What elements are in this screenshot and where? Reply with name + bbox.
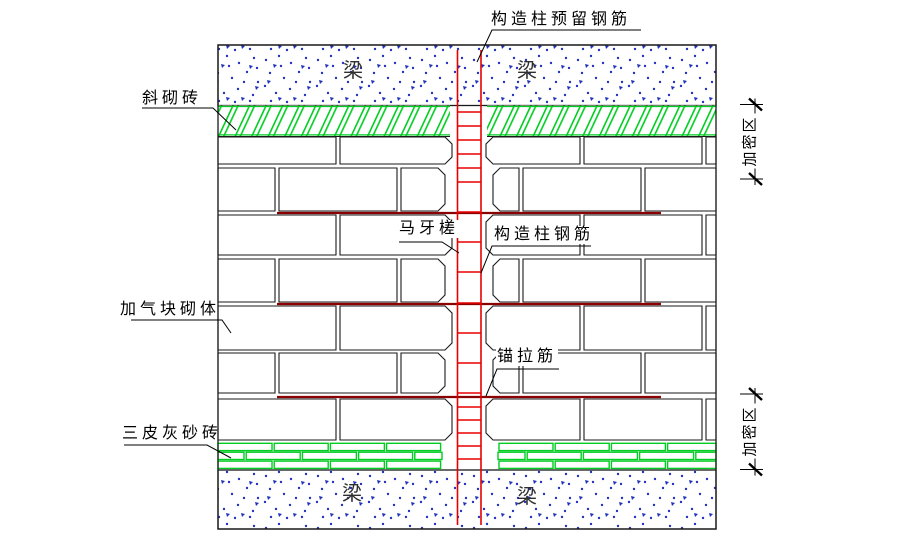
lime-sand-brick [668, 443, 716, 450]
aerated-block-brick [218, 137, 336, 164]
aerated-block-brick [279, 259, 397, 302]
aerated-block-brick [645, 353, 716, 393]
top-beam [218, 45, 716, 106]
label-beam-bottom-right: 梁 [517, 486, 537, 508]
aerated-block-brick [218, 353, 275, 393]
aerated-block-brick [218, 215, 336, 255]
aerated-block-brick [706, 215, 716, 255]
aerated-block-brick [486, 306, 580, 350]
aerated-block-brick [706, 137, 716, 164]
aerated-block-brick [493, 168, 519, 211]
aerated-block-brick [401, 353, 445, 393]
lime-sand-brick [696, 452, 716, 459]
lime-sand-brick [302, 452, 356, 459]
aerated-block-brick [493, 259, 519, 302]
aerated-block-brick [645, 168, 716, 211]
aerated-block-brick [645, 259, 716, 302]
label-beam-top-left: 梁 [343, 60, 363, 82]
lime-sand-brick [387, 461, 441, 468]
aerated-block-brick [218, 168, 275, 211]
aerated-block-brick [401, 259, 445, 302]
lime-sand-brick [640, 452, 694, 459]
construction-detail-drawing: 构造柱预留钢筋 斜砌砖 加气块砌体 三皮灰砂砖 马牙槎 构造柱钢筋 锚拉筋 加密… [0, 0, 914, 550]
masonry-column-diagram [0, 0, 914, 550]
aerated-block-brick [218, 306, 336, 350]
lime-sand-brick [555, 461, 609, 468]
diagonal-brick-band [218, 106, 716, 137]
aerated-block-brick [279, 353, 397, 393]
lime-sand-brick [218, 443, 272, 450]
label-densified-zone-top: 加密区 [742, 113, 759, 168]
leader-line [124, 445, 231, 458]
leader-line [131, 320, 231, 333]
lime-sand-brick [611, 461, 665, 468]
lime-sand-brick [583, 452, 637, 459]
aerated-block-brick [340, 306, 452, 350]
lime-sand-brick [611, 443, 665, 450]
label-anchor-tie: 锚拉筋 [496, 348, 558, 366]
label-aerated-block: 加气块砌体 [120, 301, 220, 319]
aerated-block-brick [523, 259, 641, 302]
lime-sand-brick [668, 461, 716, 468]
aerated-block-brick [218, 259, 275, 302]
diagonal-brick-segment [487, 106, 716, 137]
lime-sand-brick [387, 443, 441, 450]
lime-sand-brick [415, 452, 442, 459]
aerated-block-brick [584, 137, 702, 164]
aerated-block-brick [486, 399, 580, 440]
aerated-block-brick [584, 306, 702, 350]
lime-sand-brick [498, 452, 525, 459]
aerated-block-brick [401, 168, 445, 211]
aerated-block-brick [340, 399, 452, 440]
lime-sand-brick [330, 461, 384, 468]
aerated-block-brick [706, 399, 716, 440]
lime-sand-brick [359, 452, 413, 459]
lime-sand-brick [274, 443, 328, 450]
lime-sand-brick [499, 443, 553, 450]
label-densified-zone-bottom: 加密区 [742, 403, 759, 458]
label-column-rebar: 构造柱钢筋 [493, 226, 595, 244]
aerated-block-brick [486, 137, 580, 164]
label-beam-bottom-left: 梁 [342, 483, 362, 505]
label-lime-sand-brick: 三皮灰砂砖 [122, 425, 222, 443]
bottom-beam [218, 470, 716, 529]
aerated-block-brick [218, 399, 336, 440]
aerated-block-brick [340, 137, 452, 164]
aerated-block-brick [584, 215, 702, 255]
lime-sand-brick [274, 461, 328, 468]
lime-sand-brick-band [218, 443, 716, 468]
diagonal-brick-segment [218, 106, 450, 137]
label-diagonal-brick: 斜砌砖 [142, 90, 202, 108]
lime-sand-brick [527, 452, 581, 459]
aerated-block-brick [584, 399, 702, 440]
aerated-block-brick [523, 168, 641, 211]
lime-sand-brick [499, 461, 553, 468]
aerated-block-brick [279, 168, 397, 211]
lime-sand-brick [218, 461, 272, 468]
label-toothed-joint: 马牙槎 [398, 220, 460, 238]
aerated-block-brick [706, 306, 716, 350]
lime-sand-brick [330, 443, 384, 450]
lime-sand-brick [555, 443, 609, 450]
label-top-reserved-rebar: 构造柱预留钢筋 [491, 11, 631, 29]
lime-sand-brick [246, 452, 300, 459]
label-beam-top-right: 梁 [517, 60, 537, 82]
column-rebar-ladder [458, 50, 482, 525]
